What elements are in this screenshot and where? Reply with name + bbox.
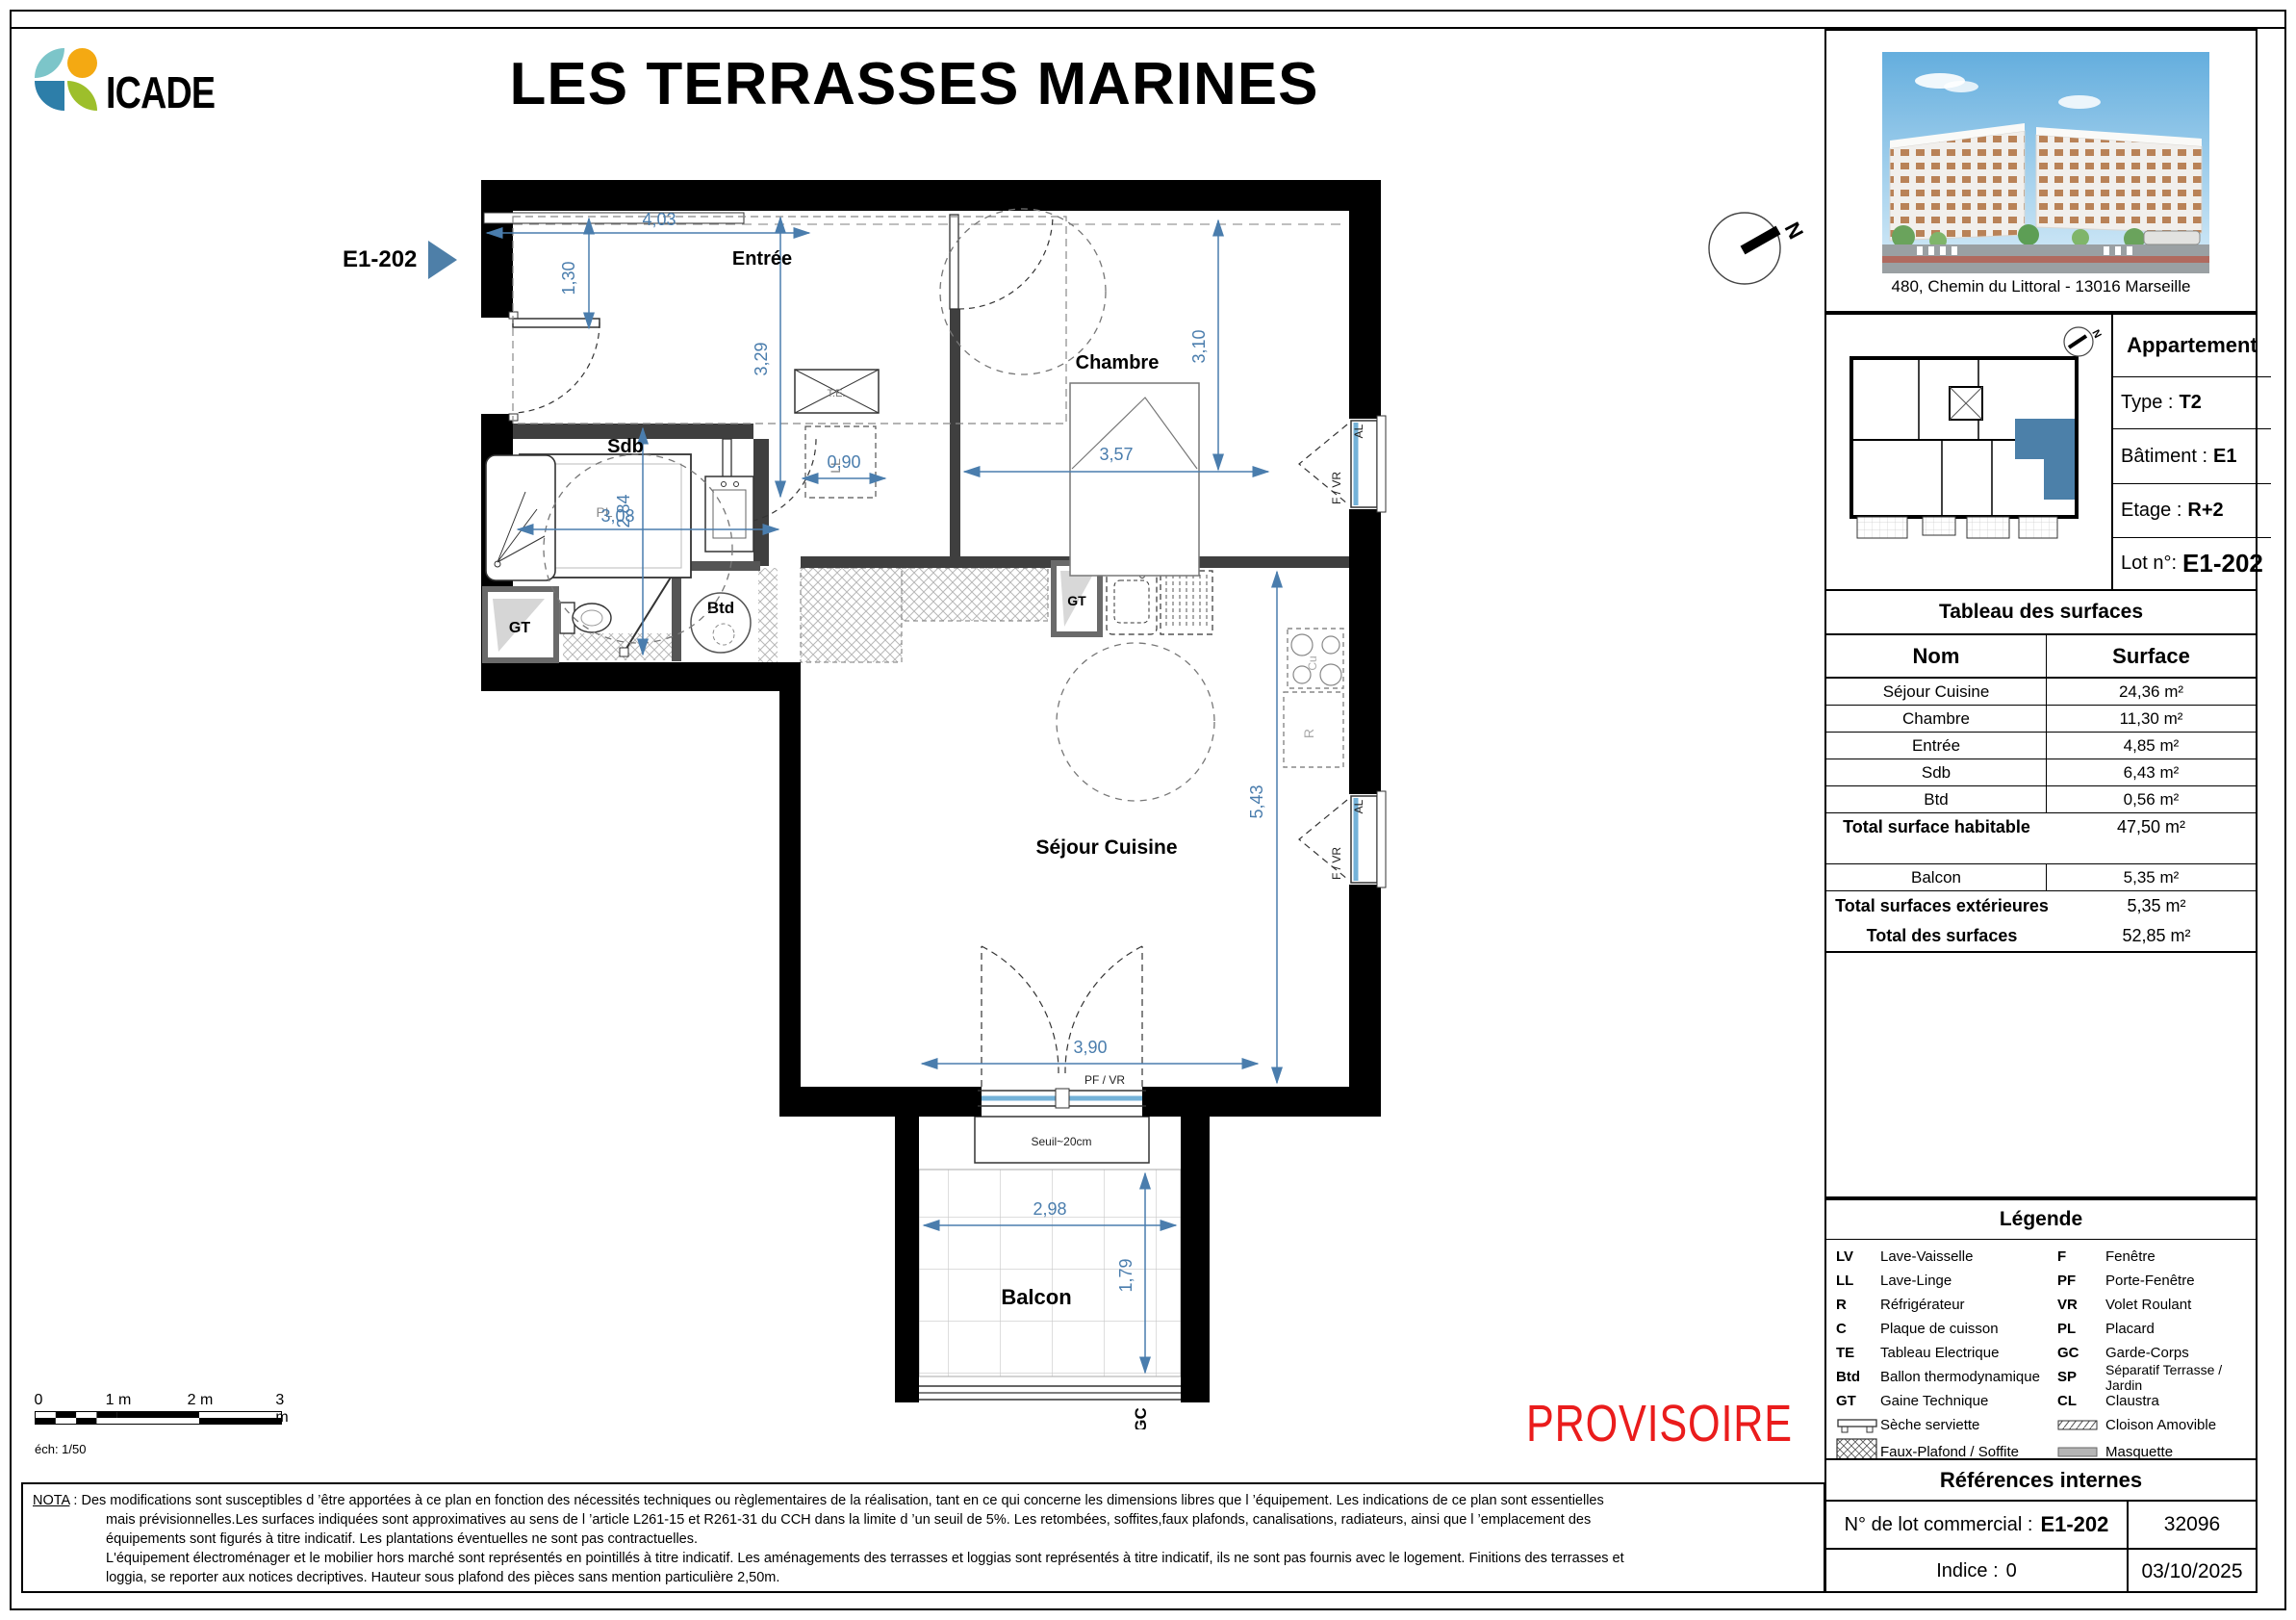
window-chambre-label: F / VR: [1330, 472, 1343, 504]
seuil-label: Seuil~20cm: [1031, 1135, 1091, 1148]
scale-3m: 3 m: [275, 1392, 288, 1427]
window-chambre-al-label: AL: [1352, 424, 1365, 438]
building-photo: [1882, 52, 2209, 273]
faux-plafond-hatch: [563, 568, 1048, 662]
window-sejour-label: F / VR: [1330, 847, 1343, 880]
legend-row: Sèche serviette Cloison Amovible: [1836, 1413, 2246, 1437]
legend-row: GTGaine Technique CLClaustra: [1836, 1389, 2246, 1413]
dim-entree-d: 1,30: [559, 261, 578, 295]
room-label-balcon: Balcon: [1001, 1285, 1071, 1309]
room-label-entree: Entrée: [732, 248, 792, 270]
nota-line: L'équipement électroménager et le mobili…: [33, 1549, 1814, 1568]
bed: [1070, 383, 1199, 576]
masquette-icon: [2057, 1445, 2105, 1458]
dim-sdb-h: 2,84: [614, 494, 633, 527]
legend-row: LLLave-Linge PFPorte-Fenêtre: [1836, 1269, 2246, 1293]
key-plan: N: [1826, 315, 2111, 589]
surface-table: Tableau des surfaces Nom Surface Séjour …: [1824, 589, 2258, 1198]
dim-left-h: 3,29: [752, 342, 771, 375]
fridge: R: [1284, 692, 1343, 767]
toilet: [560, 603, 611, 633]
cooktop-label: Cu: [1306, 656, 1319, 670]
lot-commercial-row: N° de lot commercial :E1-202 32096: [1826, 1502, 2256, 1550]
balcon-row: Balcon5,35 m²: [1826, 864, 2256, 891]
chambre-door: [950, 215, 1053, 309]
legend-title: Légende: [1826, 1200, 2256, 1240]
entrance-door: [509, 312, 600, 421]
col-surface: Surface: [2047, 635, 2256, 677]
lot-arrow-icon: [428, 241, 457, 279]
surface-table-header: Nom Surface: [1826, 635, 2256, 679]
compass-north-label: N: [1780, 219, 1807, 244]
room-label-sejour: Séjour Cuisine: [1035, 836, 1177, 859]
legend-box: Légende LVLave-Vaisselle FFenêtre LLLave…: [1824, 1198, 2258, 1460]
project-photo-box: 480, Chemin du Littoral - 13016 Marseill…: [1824, 29, 2258, 313]
dim-sejour-w: 3,90: [1073, 1038, 1107, 1057]
gt-cuisine-label: GT: [1067, 593, 1086, 608]
dim-sejour-h: 5,43: [1247, 784, 1266, 818]
date: 03/10/2025: [2129, 1550, 2256, 1593]
key-plan-drawing: N: [1826, 315, 2111, 589]
legend-row: CPlaque de cuisson PLPlacard: [1836, 1317, 2246, 1341]
scale-0: 0: [35, 1392, 43, 1409]
te-label: T.E.: [828, 388, 846, 399]
table-row: Entrée4,85 m²: [1826, 733, 2256, 759]
north-compass-icon: N: [1701, 198, 1807, 295]
page-title: LES TERRASSES MARINES: [318, 50, 1511, 118]
seuil: Seuil~20cm: [975, 1117, 1149, 1163]
dim-pass: 0,90: [827, 452, 860, 472]
legend-row: BtdBallon thermodynamique SPSéparatif Te…: [1836, 1365, 2246, 1389]
key-plan-north-label: N: [2089, 328, 2103, 341]
lot-tag-label: E1-202: [343, 246, 417, 273]
table-row: Sdb6,43 m²: [1826, 759, 2256, 786]
icade-logo-text: ICADE: [106, 74, 215, 112]
project-address: 480, Chemin du Littoral - 13016 Marseill…: [1826, 277, 2256, 296]
nota-line: équipements sont figurés à titre indicat…: [33, 1530, 1814, 1549]
cloison-amovible-icon: [2057, 1419, 2105, 1432]
window-chambre: F / VR AL: [1299, 416, 1386, 512]
icade-logo-icon: [35, 48, 98, 112]
dim-chambre-w: 3,57: [1099, 445, 1133, 464]
lot-tag: E1-202: [343, 241, 457, 279]
nota-label: NOTA: [33, 1493, 69, 1508]
scale-caption: éch: 1/50: [35, 1442, 87, 1456]
apartment-batiment: Bâtiment :E1: [2113, 429, 2271, 484]
scale-2m: 2 m: [188, 1392, 214, 1409]
totals-block: Total surfaces extérieures5,35 m² Total …: [1826, 891, 2256, 953]
nota-line: NOTA : Des modifications sont susceptibl…: [33, 1491, 1814, 1510]
ballon-thermodynamique: Btd: [691, 593, 751, 653]
references-title: Références internes: [1826, 1460, 2256, 1502]
masquette-strip: [484, 213, 744, 223]
surface-table-title: Tableau des surfaces: [1826, 591, 2256, 635]
col-nom: Nom: [1826, 635, 2047, 677]
gt-sdb-label: GT: [509, 620, 530, 636]
apartment-etage: Etage :R+2: [2113, 484, 2271, 538]
table-row: Séjour Cuisine24,36 m²: [1826, 679, 2256, 706]
scale-1m: 1 m: [106, 1392, 132, 1409]
kitchen-sink: [1107, 571, 1157, 634]
legend-row: RRéfrigérateur VRVolet Roulant: [1836, 1293, 2246, 1317]
apartment-lot: Lot n°:E1-202: [2113, 538, 2271, 589]
total-habitable-row: Total surface habitable47,50 m²: [1826, 813, 2256, 864]
seche-serviette-icon: [1836, 1417, 1880, 1434]
fridge-label: R: [1301, 729, 1316, 738]
nota-line: loggia, se reporter aux notices decripti…: [33, 1568, 1814, 1587]
gc-label: GC: [1132, 1407, 1150, 1429]
porte-fenetre: PF / VR: [978, 946, 1146, 1108]
scale-bar-graphic: [35, 1411, 283, 1426]
shower: [486, 455, 555, 580]
tableau-electrique: T.E.: [795, 370, 879, 413]
provisoire-stamp: PROVISOIRE: [1526, 1394, 1793, 1453]
icade-logo: ICADE: [35, 48, 239, 112]
table-row: Chambre11,30 m²: [1826, 706, 2256, 733]
gaine-technique-sdb: GT: [485, 589, 556, 660]
window-sejour: F / VR AL: [1299, 791, 1386, 887]
scale-bar: 0 1 m 2 m 3 m: [35, 1392, 294, 1442]
references-box: Références internes N° de lot commercial…: [1824, 1458, 2258, 1593]
nota-line: mais prévisionnelles.Les surfaces indiqu…: [33, 1510, 1814, 1530]
dim-balcon-d: 1,79: [1116, 1258, 1135, 1292]
apartment-info-box: N Appartement Type :T2 Bâtiment :E1 Etag…: [1824, 313, 2258, 591]
cooktop: Cu: [1288, 629, 1343, 688]
legend-row: LVLave-Vaisselle FFenêtre: [1836, 1245, 2246, 1269]
dim-chambre-h: 3,10: [1189, 329, 1209, 363]
room-label-chambre: Chambre: [1076, 352, 1160, 373]
dim-entree-w: 4,03: [642, 210, 676, 229]
room-label-sdb: Sdb: [607, 436, 644, 457]
lot-code: 32096: [2129, 1502, 2256, 1548]
indice-row: Indice :0 03/10/2025: [1826, 1550, 2256, 1593]
nota-box: NOTA : Des modifications sont susceptibl…: [21, 1482, 1825, 1593]
apartment-type: Type :T2: [2113, 377, 2271, 429]
window-sejour-al-label: AL: [1352, 799, 1365, 813]
table-row: Btd0,56 m²: [1826, 786, 2256, 813]
lave-vaisselle: [1161, 571, 1212, 634]
vanity-sink: [705, 476, 753, 552]
floor-plan: GC Seuil~20cm F / VR A: [481, 178, 1443, 1429]
dim-balcon-w: 2,98: [1033, 1199, 1066, 1219]
apartment-title: Appartement: [2113, 315, 2271, 377]
pf-vr-label: PF / VR: [1084, 1073, 1125, 1087]
